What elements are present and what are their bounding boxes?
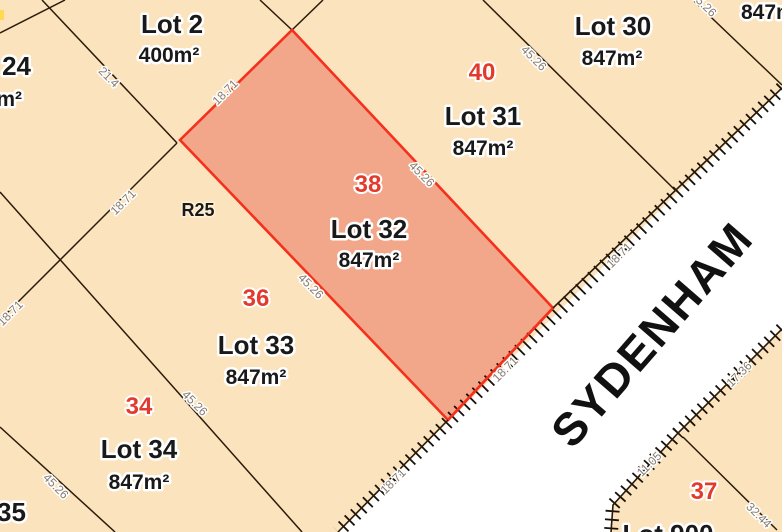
lot-30-area: 847m² [582,47,643,70]
lot-2-area: 400m² [139,44,200,67]
lot-34-number: 34 [126,393,153,420]
edge-left-lot-area: m² [0,88,22,111]
lot-33-number: 36 [243,285,270,312]
map-viewport[interactable]: Lot 2 400m² Lot 30 847m² 40 Lot 31 847m²… [0,0,782,532]
map-artifact [0,10,4,20]
lot-32-name: Lot 32 [331,214,408,244]
lot-900-number: 37 [691,478,718,505]
lot-34-area: 847m² [109,471,170,494]
edge-top-right-lot-area: 847m² [741,1,782,24]
lot-32-number: 38 [355,171,382,198]
lot-31-number: 40 [469,59,496,86]
lot-33-area: 847m² [226,366,287,389]
lot-900-name: Lot 900 [622,519,713,532]
edge-bottom-left-lot-number: 35 [0,497,26,527]
lot-2-name: Lot 2 [141,9,203,39]
subdivision-map: Lot 2 400m² Lot 30 847m² 40 Lot 31 847m²… [0,0,782,532]
edge-left-lot-number: 24 [2,51,31,81]
lot-32-area: 847m² [339,249,400,272]
lot-30-name: Lot 30 [575,11,652,41]
zoning-code-r25: R25 [181,200,214,220]
lot-31-name: Lot 31 [445,101,522,131]
lot-34-name: Lot 34 [101,434,178,464]
lot-33-name: Lot 33 [218,330,295,360]
lot-31-area: 847m² [453,137,514,160]
